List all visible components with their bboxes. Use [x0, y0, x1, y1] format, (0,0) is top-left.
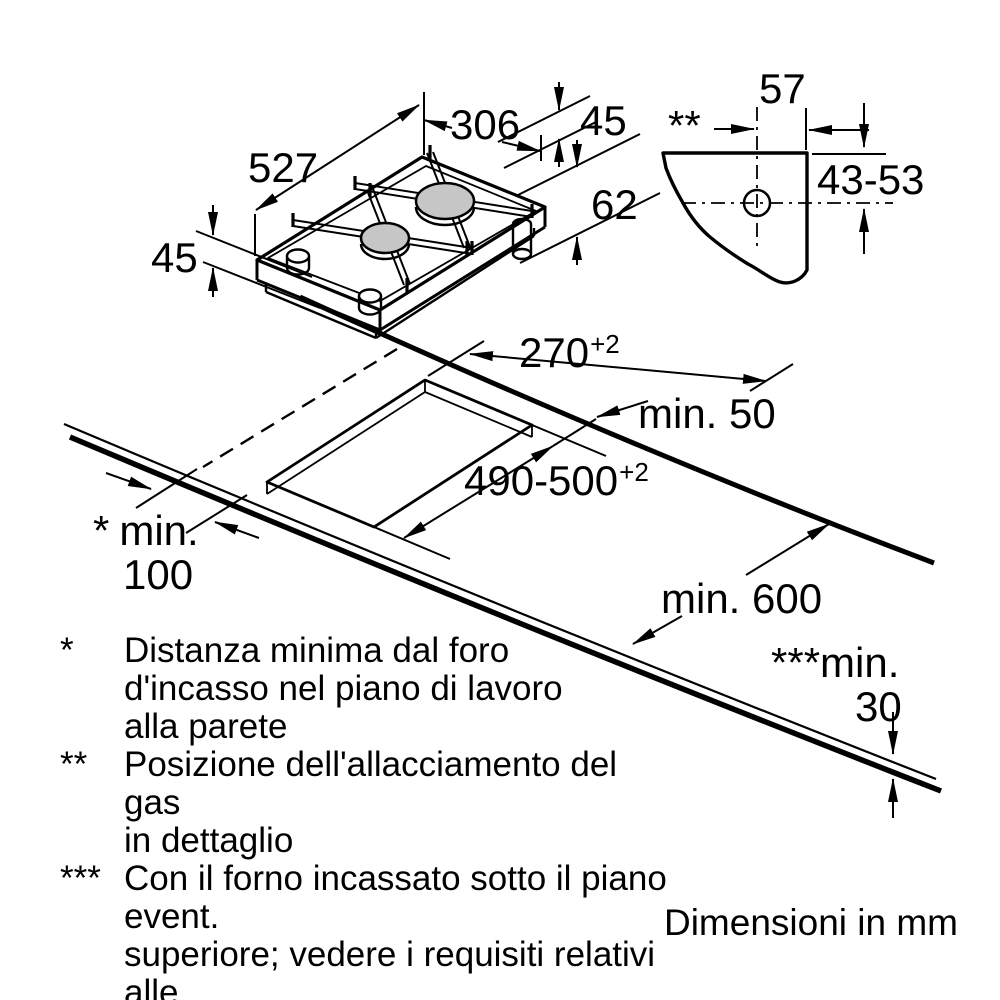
dim-label-oven-clearance: ***min. 30 [771, 641, 902, 728]
dim-label-worktop-depth: min. 600 [661, 577, 822, 621]
dim-label-wall-clearance: *min. 100 [93, 509, 199, 596]
dim-label-hob-total-height: 62 [591, 183, 638, 227]
wall-clearance-marker: * [93, 507, 109, 554]
dim-line-306-left [424, 120, 452, 128]
wall-clearance-line1: *min. [93, 509, 199, 553]
dim-label-hob-depth: 527 [248, 146, 318, 190]
cutout-width-value: 270 [519, 329, 589, 376]
footnote-lines: Posizione dell'allacciamento del gas in … [124, 746, 680, 860]
leader-min-600-up [746, 524, 829, 575]
dim-label-hob-height-right: 45 [580, 99, 627, 143]
footnote-line: superiore; vedere i requisiti relativi a… [124, 936, 680, 1000]
burner-small [361, 223, 409, 259]
dim-label-cutout-width: 270+2 [519, 331, 620, 375]
oven-clearance-value: 30 [771, 685, 902, 729]
burner-large [416, 183, 474, 225]
cutout-width-tolerance: +2 [590, 329, 620, 359]
footnote-line: in dettaglio [124, 822, 680, 860]
ext-line-490-bottom [374, 527, 450, 559]
wall-clearance-label: min. [119, 507, 198, 554]
footnote-marker: * [60, 632, 74, 670]
arrow-min-100-left [106, 473, 151, 489]
oven-clearance-label: ***min. [771, 641, 902, 685]
dim-label-cutout-depth: 490-500+2 [464, 459, 649, 503]
gas-detail-marker: ** [668, 104, 701, 148]
footnotes: * Distanza minima dal foro d'incasso nel… [60, 632, 680, 1000]
dim-label-rear-clearance: min. 50 [638, 392, 776, 436]
footnote-marker: ** [60, 746, 87, 784]
footnote-lines: Distanza minima dal foro d'incasso nel p… [124, 632, 680, 746]
footnote-marker: *** [60, 860, 101, 898]
footnote-line: Posizione dell'allacciamento del gas [124, 746, 680, 822]
footnote-wall-distance: * Distanza minima dal foro d'incasso nel… [60, 632, 680, 746]
dim-label-gas-offset-x: 57 [759, 67, 806, 111]
cutout-opening [267, 380, 532, 527]
footnote-line: alla parete [124, 708, 680, 746]
dim-label-hob-width: 306 [450, 103, 520, 147]
arrow-min-100-right [215, 522, 259, 538]
ext-line-270-right [750, 364, 793, 391]
cutout-depth-tolerance: +2 [619, 457, 649, 487]
footnote-line: d'incasso nel piano di lavoro [124, 670, 680, 708]
installation-diagram: 306 45 527 62 45 57 ** 43-53 270+2 min. … [0, 0, 1000, 1000]
pan-supports [293, 145, 532, 292]
footnote-gas-position: ** Posizione dell'allacciamento del gas … [60, 746, 680, 860]
units-note: Dimensioni in mm [560, 902, 958, 944]
cutout-depth-value: 490-500 [464, 457, 618, 504]
ext-line-45l-bottom [203, 262, 320, 308]
wall-line-dashed [203, 349, 397, 467]
detail-outline-torn-edge [663, 153, 807, 283]
dim-label-gas-offset-y: 43-53 [817, 158, 924, 202]
wall-clearance-value: 100 [93, 553, 199, 597]
footnote-line: Distanza minima dal foro [124, 632, 680, 670]
dim-label-hob-height-left: 45 [151, 236, 198, 280]
